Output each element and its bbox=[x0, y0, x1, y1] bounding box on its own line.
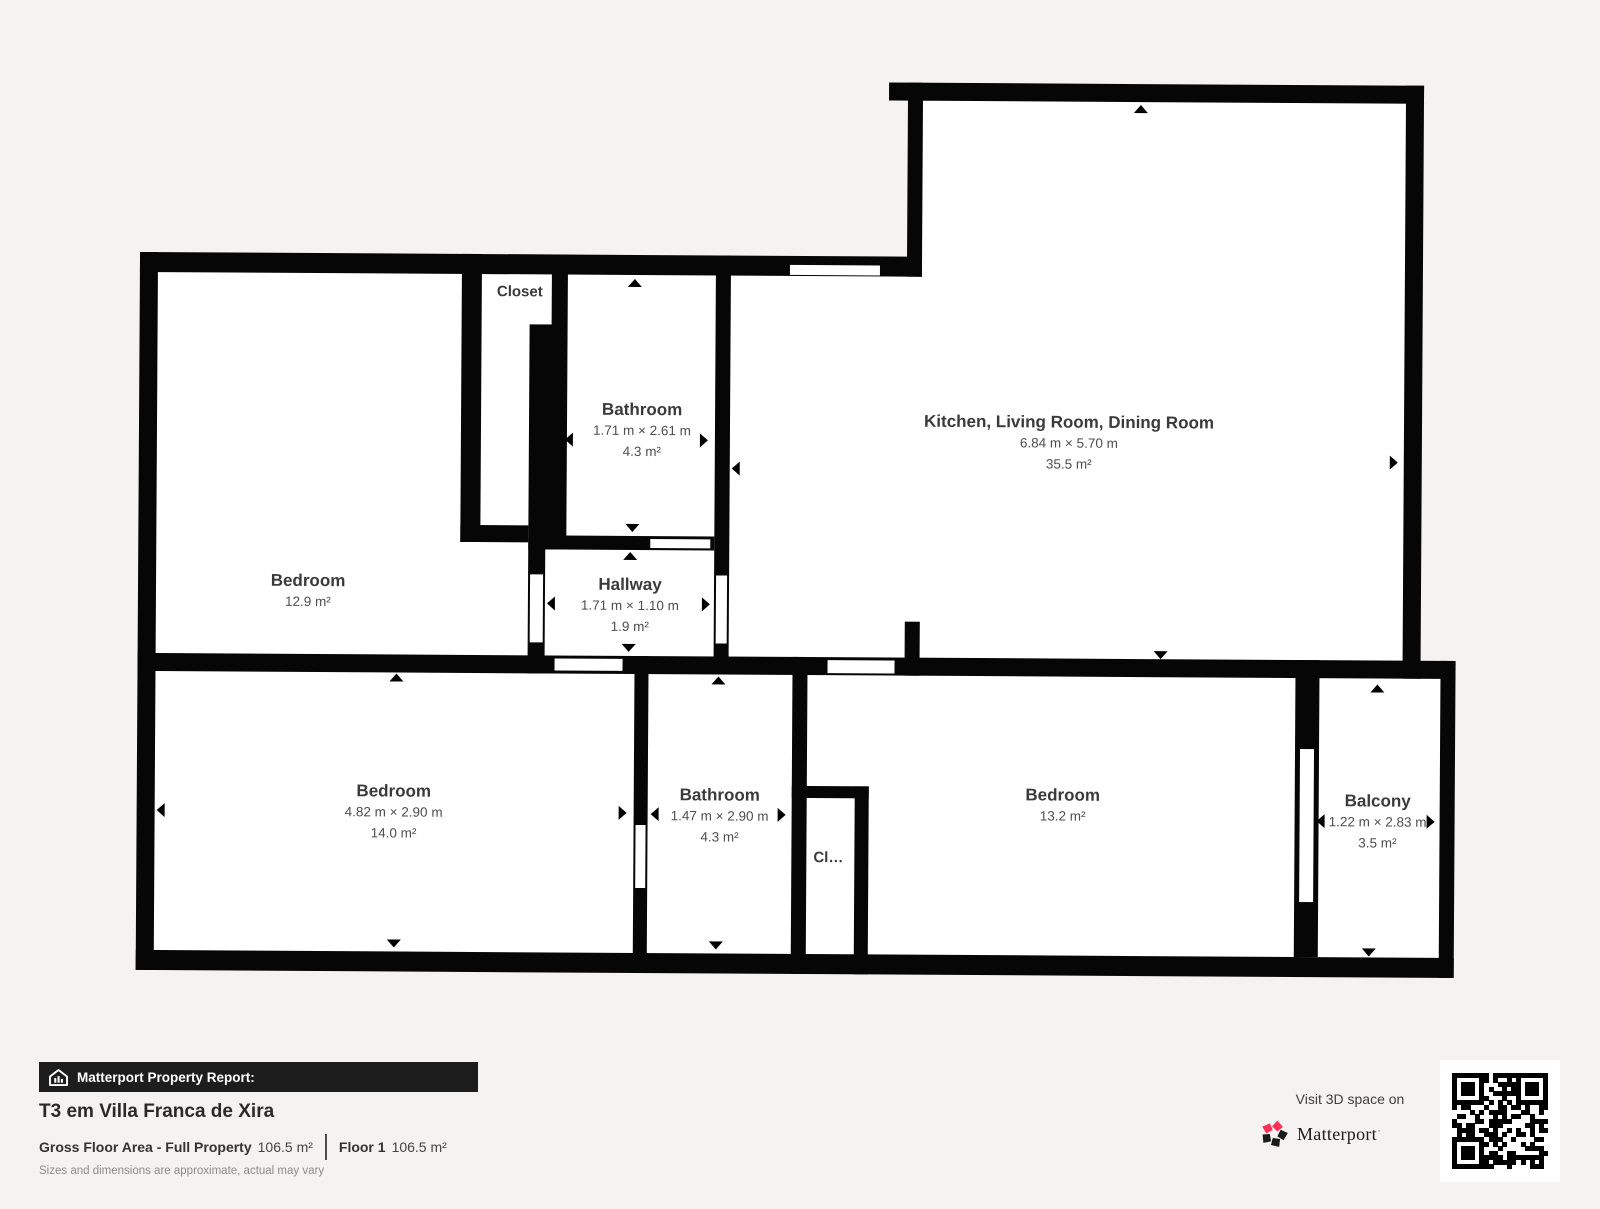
room-area: 3.5 m² bbox=[1328, 832, 1426, 854]
room-name: Bathroom bbox=[671, 784, 769, 806]
door-arrow-up-icon bbox=[628, 279, 642, 287]
room-name: Bedroom bbox=[1025, 784, 1100, 805]
report-banner-label: Matterport Property Report: bbox=[77, 1070, 255, 1085]
room-dimensions: 4.82 m × 2.90 m bbox=[345, 801, 443, 823]
qr-code bbox=[1452, 1073, 1548, 1169]
gross-area-label: Gross Floor Area - Full Property bbox=[39, 1139, 252, 1155]
room-label-hallway: Hallway 1.71 m × 1.10 m 1.9 m² bbox=[581, 574, 679, 638]
matterport-wordmark: Matterport bbox=[1297, 1124, 1377, 1145]
room-area: 12.9 m² bbox=[271, 591, 346, 612]
room-area: 14.0 m² bbox=[344, 822, 442, 844]
wall bbox=[907, 83, 923, 277]
door-opening bbox=[716, 575, 727, 643]
door-opening bbox=[555, 658, 623, 670]
room-dimensions: 1.22 m × 2.83 m bbox=[1329, 811, 1427, 833]
wall bbox=[904, 622, 919, 676]
room-label-bathroom-tl: Bathroom 1.71 m × 2.61 m 4.3 m² bbox=[593, 399, 691, 463]
door-arrow-down-icon bbox=[1154, 651, 1168, 659]
wall bbox=[854, 786, 869, 974]
room-name: Bedroom bbox=[345, 780, 443, 802]
wall bbox=[1439, 661, 1456, 978]
door-arrow-down-icon bbox=[1362, 948, 1376, 956]
door-arrow-up-icon bbox=[1134, 105, 1148, 113]
floor-value: 106.5 m² bbox=[392, 1139, 447, 1155]
floor-label: Floor 1 bbox=[339, 1139, 386, 1155]
house-report-icon bbox=[49, 1069, 68, 1086]
door-arrow-left-icon bbox=[651, 807, 659, 821]
door-opening bbox=[530, 574, 543, 642]
wall bbox=[460, 254, 482, 542]
room-label-closet-b: Cl… bbox=[813, 849, 843, 866]
door-arrow-left-icon bbox=[547, 596, 555, 610]
wall bbox=[460, 525, 528, 542]
room-kitchen-living-dining bbox=[920, 101, 1406, 661]
room-label-balcony: Balcony 1.22 m × 2.83 m 3.5 m² bbox=[1328, 790, 1426, 854]
door-arrow-right-icon bbox=[778, 808, 786, 822]
door-arrow-up-icon bbox=[623, 552, 637, 560]
room-closet-b bbox=[804, 798, 855, 954]
door-arrow-up-icon bbox=[711, 676, 725, 684]
room-area: 4.3 m² bbox=[670, 826, 768, 848]
room-kitchen-living-dining bbox=[729, 276, 922, 658]
room-bedroom-tl bbox=[156, 272, 547, 655]
trademark-icon: ʼ bbox=[1378, 1129, 1380, 1139]
door-arrow-down-icon bbox=[625, 524, 639, 532]
wall bbox=[528, 324, 567, 549]
room-label-bedroom-tl: Bedroom 12.9 m² bbox=[271, 570, 346, 612]
door-arrow-left-icon bbox=[157, 803, 165, 817]
door-opening bbox=[827, 660, 894, 673]
door-arrow-down-icon bbox=[387, 939, 401, 947]
door-arrow-up-icon bbox=[1370, 684, 1384, 692]
door-arrow-left-icon bbox=[565, 433, 573, 447]
window-opening bbox=[790, 265, 880, 276]
report-banner: Matterport Property Report: bbox=[39, 1062, 478, 1092]
room-name: Bathroom bbox=[593, 399, 691, 421]
room-name: Hallway bbox=[581, 574, 679, 596]
matterport-brand: Matterportʼ bbox=[1258, 1118, 1380, 1150]
room-area: 4.3 m² bbox=[593, 441, 691, 463]
door-arrow-left-icon bbox=[732, 462, 740, 476]
disclaimer-note: Sizes and dimensions are approximate, ac… bbox=[39, 1165, 324, 1177]
floor-plan: Bedroom 12.9 m² Closet Bathroom 1.71 m ×… bbox=[0, 0, 1600, 1209]
door-arrow-right-icon bbox=[700, 433, 708, 447]
door-arrow-right-icon bbox=[619, 806, 627, 820]
room-label-closet-tl: Closet bbox=[497, 283, 543, 300]
room-label-kitchen-living-dining: Kitchen, Living Room, Dining Room 6.84 m… bbox=[924, 411, 1214, 476]
wall bbox=[1402, 86, 1424, 679]
gross-area-value: 106.5 m² bbox=[258, 1139, 313, 1155]
door-opening bbox=[635, 825, 645, 888]
wall bbox=[633, 656, 649, 973]
door-arrow-left-icon bbox=[1317, 814, 1325, 828]
visit-3d-label: Visit 3D space on bbox=[1260, 1091, 1440, 1107]
area-summary: Gross Floor Area - Full Property 106.5 m… bbox=[39, 1134, 447, 1160]
window-opening bbox=[1299, 749, 1314, 902]
wall bbox=[889, 83, 1424, 104]
property-title: T3 em Villa Franca de Xira bbox=[39, 1101, 274, 1123]
room-name: Kitchen, Living Room, Dining Room bbox=[924, 411, 1214, 434]
room-area: 35.5 m² bbox=[924, 453, 1214, 476]
matterport-logo-icon bbox=[1258, 1118, 1290, 1150]
room-area: 13.2 m² bbox=[1025, 805, 1100, 826]
door-arrow-down-icon bbox=[709, 941, 723, 949]
wall bbox=[552, 254, 568, 324]
separator bbox=[325, 1134, 327, 1160]
door-arrow-up-icon bbox=[389, 673, 403, 681]
door-arrow-right-icon bbox=[1427, 815, 1435, 829]
room-label-bathroom-b: Bathroom 1.47 m × 2.90 m 4.3 m² bbox=[670, 784, 768, 848]
room-name: Balcony bbox=[1329, 790, 1427, 812]
qr-panel bbox=[1440, 1060, 1560, 1182]
room-label-bedroom-bl: Bedroom 4.82 m × 2.90 m 14.0 m² bbox=[344, 780, 442, 844]
room-label-bedroom-br: Bedroom 13.2 m² bbox=[1025, 784, 1100, 826]
room-dimensions: 1.71 m × 2.61 m bbox=[593, 420, 691, 442]
door-arrow-right-icon bbox=[702, 597, 710, 611]
window-opening bbox=[650, 539, 710, 548]
room-dimensions: 1.71 m × 1.10 m bbox=[581, 595, 679, 617]
door-arrow-right-icon bbox=[1390, 456, 1398, 470]
room-dimensions: 1.47 m × 2.90 m bbox=[671, 805, 769, 827]
wall bbox=[791, 657, 808, 974]
room-area: 1.9 m² bbox=[581, 616, 679, 638]
room-name: Bedroom bbox=[271, 570, 346, 591]
room-dimensions: 6.84 m × 5.70 m bbox=[924, 432, 1214, 455]
door-arrow-down-icon bbox=[622, 644, 636, 652]
